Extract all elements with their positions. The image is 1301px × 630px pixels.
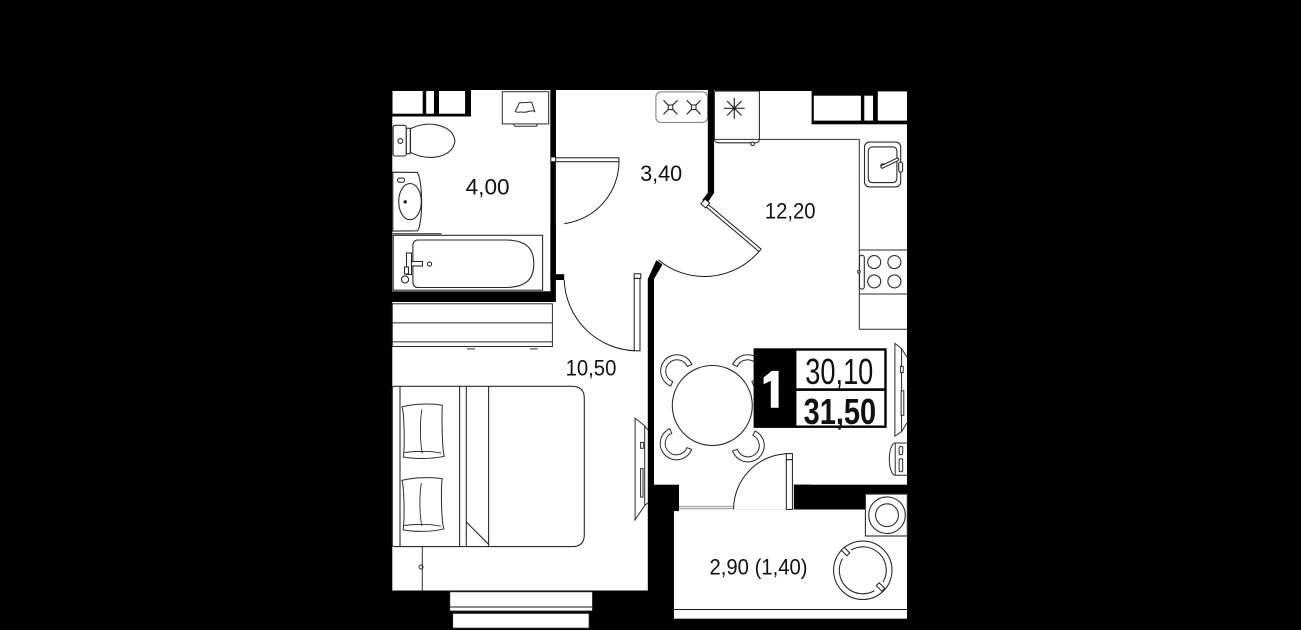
svg-text:12,20: 12,20 xyxy=(765,198,816,223)
svg-text:2,90 (1,40): 2,90 (1,40) xyxy=(710,554,808,579)
svg-text:31,50: 31,50 xyxy=(804,391,877,432)
svg-text:3,40: 3,40 xyxy=(640,161,682,186)
svg-text:10,50: 10,50 xyxy=(566,356,617,381)
svg-text:30,10: 30,10 xyxy=(805,351,873,392)
svg-text:4,00: 4,00 xyxy=(466,174,510,199)
